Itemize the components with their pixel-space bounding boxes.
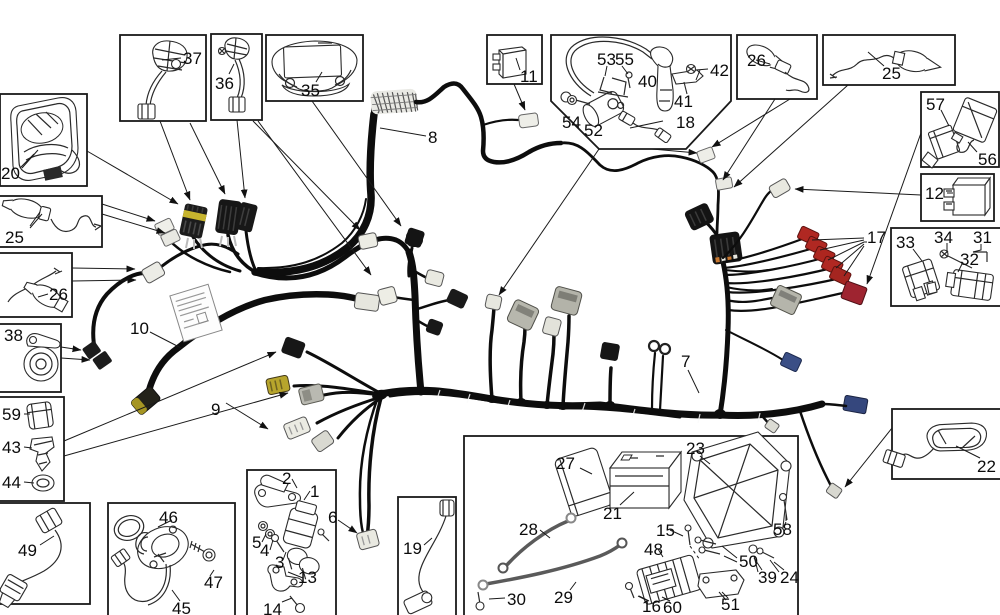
svg-text:53: 53 [597, 50, 616, 69]
svg-text:17: 17 [867, 228, 886, 247]
svg-text:59: 59 [2, 405, 21, 424]
svg-text:56: 56 [978, 150, 997, 169]
svg-text:19: 19 [403, 539, 422, 558]
svg-text:10: 10 [130, 319, 149, 338]
svg-text:55: 55 [615, 50, 634, 69]
svg-text:18: 18 [676, 113, 695, 132]
svg-text:42: 42 [710, 61, 729, 80]
svg-text:47: 47 [204, 573, 223, 592]
svg-text:34: 34 [934, 228, 953, 247]
svg-text:40: 40 [638, 72, 657, 91]
svg-text:31: 31 [973, 228, 992, 247]
svg-text:60: 60 [663, 598, 682, 615]
svg-text:6: 6 [328, 508, 337, 527]
svg-text:39: 39 [758, 568, 777, 587]
svg-text:52: 52 [584, 121, 603, 140]
svg-text:4: 4 [260, 541, 269, 560]
svg-text:58: 58 [773, 520, 792, 539]
svg-text:50: 50 [739, 552, 758, 571]
svg-text:28: 28 [519, 520, 538, 539]
svg-text:48: 48 [644, 540, 663, 559]
svg-text:43: 43 [2, 438, 21, 457]
svg-text:2: 2 [282, 469, 291, 488]
svg-text:33: 33 [896, 233, 915, 252]
svg-text:36: 36 [215, 74, 234, 93]
svg-text:41: 41 [674, 92, 693, 111]
svg-text:21: 21 [603, 504, 622, 523]
svg-text:20: 20 [1, 164, 20, 183]
svg-text:27: 27 [556, 454, 575, 473]
svg-text:26: 26 [49, 285, 68, 304]
svg-text:14: 14 [263, 600, 282, 615]
svg-text:9: 9 [211, 400, 220, 419]
svg-text:46: 46 [159, 508, 178, 527]
svg-text:29: 29 [554, 588, 573, 607]
svg-text:1: 1 [310, 482, 319, 501]
svg-text:12: 12 [925, 184, 944, 203]
svg-text:16: 16 [642, 597, 661, 615]
svg-text:54: 54 [562, 113, 581, 132]
svg-text:8: 8 [428, 128, 437, 147]
svg-text:11: 11 [520, 67, 538, 86]
svg-text:25: 25 [5, 228, 24, 247]
svg-text:35: 35 [301, 81, 320, 100]
svg-text:30: 30 [507, 590, 526, 609]
svg-text:37: 37 [183, 49, 202, 68]
svg-text:3: 3 [275, 553, 284, 572]
svg-text:23: 23 [686, 439, 705, 458]
svg-text:7: 7 [681, 352, 690, 371]
svg-text:32: 32 [960, 250, 979, 269]
svg-text:38: 38 [4, 326, 23, 345]
svg-text:49: 49 [18, 541, 37, 560]
svg-text:44: 44 [2, 473, 21, 492]
svg-text:22: 22 [977, 457, 996, 476]
svg-text:24: 24 [780, 568, 799, 587]
svg-text:45: 45 [172, 599, 191, 615]
svg-text:25: 25 [882, 64, 901, 83]
